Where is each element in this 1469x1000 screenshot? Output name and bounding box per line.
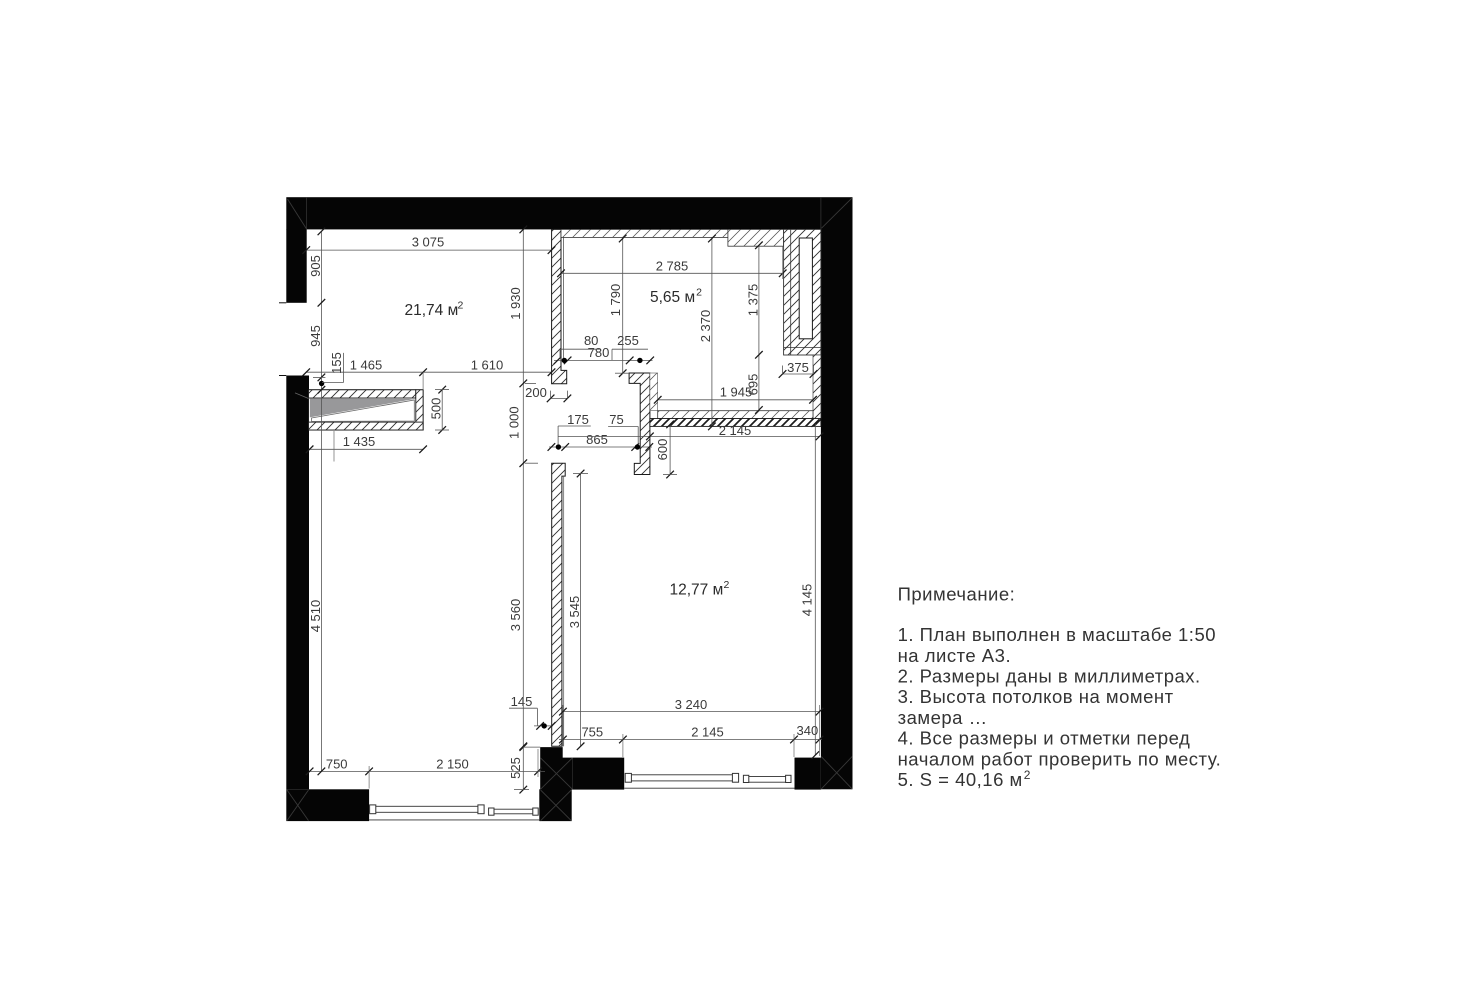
svg-text:145: 145 <box>511 694 533 709</box>
svg-text:1 375: 1 375 <box>745 284 760 317</box>
svg-text:3 560: 3 560 <box>508 599 523 632</box>
svg-text:905: 905 <box>308 255 323 277</box>
svg-text:началом работ проверить по мес: началом работ проверить по месту. <box>898 748 1222 769</box>
svg-text:3 545: 3 545 <box>567 596 582 629</box>
svg-text:12,77 м: 12,77 м <box>670 582 724 599</box>
svg-text:1 465: 1 465 <box>350 357 383 372</box>
svg-text:865: 865 <box>586 432 608 447</box>
svg-text:2: 2 <box>1024 768 1031 782</box>
svg-text:1 790: 1 790 <box>608 284 623 317</box>
svg-text:80: 80 <box>584 333 598 348</box>
svg-text:Примечание:: Примечание: <box>898 583 1016 604</box>
svg-text:175: 175 <box>567 412 589 427</box>
svg-text:5. S = 40,16 м: 5. S = 40,16 м <box>898 769 1023 790</box>
svg-text:945: 945 <box>308 325 323 347</box>
svg-text:21,74 м: 21,74 м <box>405 302 459 319</box>
svg-text:3 075: 3 075 <box>412 235 445 250</box>
svg-text:75: 75 <box>609 412 623 427</box>
svg-text:500: 500 <box>429 398 444 420</box>
svg-text:525: 525 <box>508 757 523 779</box>
svg-text:5,65 м: 5,65 м <box>650 289 695 306</box>
svg-text:2 785: 2 785 <box>656 259 689 274</box>
svg-text:750: 750 <box>326 757 348 772</box>
svg-text:4 510: 4 510 <box>308 600 323 633</box>
svg-text:1 000: 1 000 <box>507 406 522 439</box>
svg-text:3. Высота потолков на момент: 3. Высота потолков на момент <box>898 686 1174 707</box>
svg-text:на листе А3.: на листе А3. <box>898 645 1012 666</box>
svg-text:2: 2 <box>724 579 730 591</box>
svg-text:1. План выполнен в масштабе 1:: 1. План выполнен в масштабе 1:50 <box>898 624 1216 645</box>
svg-text:755: 755 <box>581 725 603 740</box>
svg-text:155: 155 <box>329 352 344 374</box>
svg-text:600: 600 <box>655 439 670 461</box>
svg-text:1 610: 1 610 <box>471 357 504 372</box>
svg-text:1 435: 1 435 <box>343 434 376 449</box>
svg-text:1 930: 1 930 <box>508 287 523 320</box>
svg-text:2 145: 2 145 <box>719 423 752 438</box>
svg-text:2: 2 <box>696 287 702 299</box>
svg-text:2 370: 2 370 <box>698 310 713 343</box>
svg-text:4 145: 4 145 <box>800 584 815 617</box>
svg-text:695: 695 <box>745 374 760 396</box>
svg-text:2. Размеры даны в миллиметрах.: 2. Размеры даны в миллиметрах. <box>898 666 1201 687</box>
svg-text:4. Все размеры и отметки перед: 4. Все размеры и отметки перед <box>898 728 1191 749</box>
svg-text:255: 255 <box>617 333 639 348</box>
svg-text:3 240: 3 240 <box>675 697 708 712</box>
svg-text:375: 375 <box>787 360 809 375</box>
svg-text:2 150: 2 150 <box>436 757 469 772</box>
svg-text:2 145: 2 145 <box>691 725 724 740</box>
svg-text:2: 2 <box>458 300 464 312</box>
svg-text:200: 200 <box>525 385 547 400</box>
svg-text:замера …: замера … <box>898 707 988 728</box>
